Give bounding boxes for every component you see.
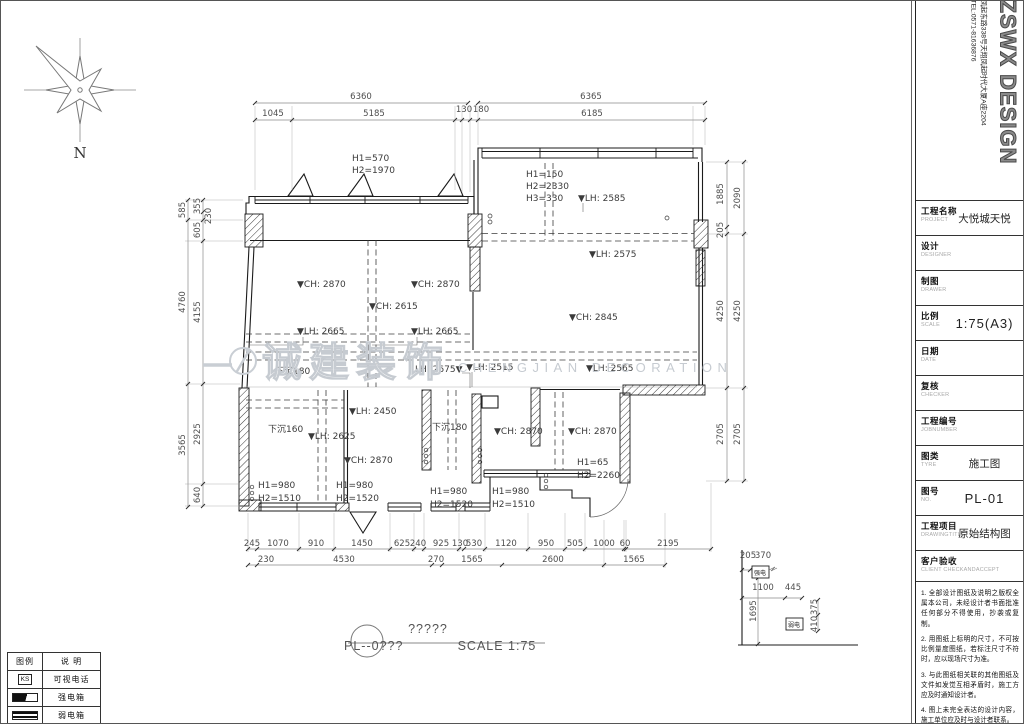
svg-text-title: PL--0??? xyxy=(344,639,403,653)
svg-text-dim: 910 xyxy=(308,539,324,549)
svg-text-dim: 445 xyxy=(785,583,801,593)
titleblock-field-5: 复核CHECKER xyxy=(916,376,1024,411)
field-value: 施工图 xyxy=(948,446,1021,480)
company-address: 凤起东路338号天翔凤起时代大厦A座2204 xyxy=(979,0,989,201)
svg-text-dim: 4250 xyxy=(716,300,726,322)
legend-label: 可视电话 xyxy=(42,671,100,688)
legend-row-1: 强电箱 xyxy=(8,688,100,706)
legend-row-2: 弱电箱 xyxy=(8,706,100,724)
svg-text-note: H1=150 xyxy=(526,170,563,180)
svg-text-dim: 205 xyxy=(716,222,726,238)
svg-text-note: 下沉160 xyxy=(268,424,303,435)
svg-text-dim: 585 xyxy=(178,202,188,218)
svg-text-note: H2=1520 xyxy=(336,494,379,504)
svg-text-dim: 375 xyxy=(810,599,820,615)
field-label: 日期 xyxy=(921,345,939,357)
svg-text-dim: 2195 xyxy=(657,539,679,549)
legend-row-0: KS可视电话 xyxy=(8,670,100,688)
svg-text-dim: 625 xyxy=(394,539,410,549)
svg-text-dim: 1565 xyxy=(623,555,645,565)
field-label: 制图 xyxy=(921,275,939,287)
svg-text-dim: 230 xyxy=(258,555,274,565)
field-value: 1:75(A3) xyxy=(948,306,1021,340)
svg-text-dim: 370 xyxy=(755,551,771,561)
svg-text-dim: 230 xyxy=(204,208,214,224)
field-label: 设计 xyxy=(921,240,939,252)
north-arrow-icon xyxy=(24,38,136,142)
svg-text-note: ▼CH: 2615 xyxy=(369,302,418,312)
legend-table: 图例 说 明 KS可视电话强电箱弱电箱 xyxy=(7,652,101,724)
svg-text-dim: 1100 xyxy=(752,583,774,593)
svg-text-dim: 2925 xyxy=(193,423,203,445)
svg-text-dim: 240 xyxy=(410,539,426,549)
svg-text-dim: 2090 xyxy=(733,187,743,209)
svg-text-dim: 205 xyxy=(740,551,756,561)
field-value xyxy=(948,551,1021,581)
svg-text-note: 下沉180 xyxy=(432,422,467,433)
svg-text-note: ▼CH: 2870 xyxy=(297,280,346,290)
field-value xyxy=(948,411,1021,445)
svg-text-note: H2=1970 xyxy=(352,166,395,176)
titleblock-field-7: 图类TYRE施工图 xyxy=(916,446,1024,481)
titleblock-notes: 1. 全部设计图纸及说明之版权全属本公司，未经设计者书面批准任何部分不得使用，抄… xyxy=(916,581,1024,718)
svg-text-dim: 2705 xyxy=(733,423,743,445)
svg-text-note: H1=980 xyxy=(336,481,373,491)
titleblock-rows: 工程名称PROJECT大悦城天悦设计DESIGNER制图DRAWER比例SCAL… xyxy=(916,201,1024,581)
svg-text-dim: 3565 xyxy=(178,434,188,456)
svg-text-note: H2=1510 xyxy=(492,500,535,510)
text-layer: 6360636510455185130180618558547603565355… xyxy=(73,92,820,653)
field-value: 原始结构图 xyxy=(948,516,1021,550)
svg-text-note: H1=980 xyxy=(492,487,529,497)
svg-text-note: H1=980 xyxy=(430,487,467,497)
svg-text-dim: 505 xyxy=(567,539,583,549)
svg-text-dim: 1450 xyxy=(351,539,373,549)
svg-text-note: ▼LH: 2665 xyxy=(411,327,459,337)
svg-text-dim: 6365 xyxy=(580,92,602,102)
svg-text-dim: 2705 xyxy=(716,423,726,445)
svg-text-note: ▼CH: 2870 xyxy=(411,280,460,290)
svg-text-dim: 925 xyxy=(433,539,449,549)
svg-text-note: H2=2330 xyxy=(526,182,569,192)
svg-text-dim: 530 xyxy=(466,539,482,549)
titleblock-divider xyxy=(911,0,912,724)
svg-text-box: 强电 xyxy=(754,569,766,577)
legend-header-symbol: 图例 xyxy=(8,653,42,670)
company-logo-section: ZSWX DESIGN 凤起东路338号天翔凤起时代大厦A座2204 TEL:0… xyxy=(916,0,1024,201)
svg-text-dim: 4250 xyxy=(733,300,743,322)
svg-text-dim: 6185 xyxy=(581,109,603,119)
titleblock-field-8: 图号NO.PL-01 xyxy=(916,481,1024,516)
svg-text-note: ▼CH: 2870 xyxy=(344,456,393,466)
field-label: 图类 xyxy=(921,450,939,462)
svg-text-dim: 60 xyxy=(620,539,631,549)
svg-text-dim: 4530 xyxy=(333,555,355,565)
svg-text-dim: 4760 xyxy=(178,291,188,313)
svg-text-dim: 270 xyxy=(428,555,444,565)
titleblock-note-2: 2. 用图纸上标明的尺寸，不可按比例量度图纸，若标注尺寸不符时，应以现场尺寸为准… xyxy=(921,635,1019,666)
svg-text-dim: 1565 xyxy=(461,555,483,565)
titleblock-field-9: 工程项目DRAWINGTITLE原始结构图 xyxy=(916,516,1024,551)
floorplan-canvas: 6360636510455185130180618558547603565355… xyxy=(0,0,915,724)
titleblock-note-3: 3. 与此图纸相关联的其他图纸及文件如发觉互相矛盾时，施工方应及时通知设计者。 xyxy=(921,671,1019,702)
titleblock-field-3: 比例SCALE1:75(A3) xyxy=(916,306,1024,341)
svg-text-note: ▼CH: 2870 xyxy=(568,427,617,437)
svg-text-title: SCALE 1:75 xyxy=(458,639,537,653)
svg-text-north: N xyxy=(73,144,86,162)
legend-label: 强电箱 xyxy=(42,689,100,706)
field-label: 复核 xyxy=(921,380,939,392)
svg-text-dim: 1070 xyxy=(267,539,289,549)
svg-text-title: ????? xyxy=(408,622,448,636)
svg-text-dim: 2600 xyxy=(542,555,564,565)
svg-text-note: H1=65 xyxy=(577,458,609,468)
legend-symbol-cell xyxy=(8,689,42,706)
svg-text-note: H2=2260 xyxy=(577,471,620,481)
svg-text-dim: 1045 xyxy=(262,109,284,119)
field-label: 比例 xyxy=(921,310,939,322)
field-value xyxy=(948,341,1021,375)
weak-symbol-icon xyxy=(12,711,38,720)
field-value: PL-01 xyxy=(948,481,1021,515)
svg-text-note: ▼LH: 2665 xyxy=(297,327,345,337)
svg-text-note: ▼LH: 2625 xyxy=(308,432,356,442)
field-value xyxy=(948,271,1021,305)
strong-symbol-icon xyxy=(12,693,38,702)
titleblock-field-1: 设计DESIGNER xyxy=(916,236,1024,271)
titleblock-field-10: 客户验收CLIENT CHECKANDACCEPT xyxy=(916,551,1024,581)
svg-text-note: ▼LH: 2450 xyxy=(349,407,397,417)
titleblock-note-1: 1. 全部设计图纸及说明之版权全属本公司，未经设计者书面批准任何部分不得使用，抄… xyxy=(921,589,1019,630)
svg-text-dim: 130 xyxy=(456,105,472,115)
svg-text-dim: 640 xyxy=(193,487,203,503)
svg-text-dim: 6360 xyxy=(350,92,372,102)
svg-text-dim: 950 xyxy=(538,539,554,549)
titleblock-field-2: 制图DRAWER xyxy=(916,271,1024,306)
legend-header-desc: 说 明 xyxy=(42,653,100,670)
field-label: 图号 xyxy=(921,485,939,497)
svg-text-dim: 180 xyxy=(473,105,489,115)
svg-text-note: H1=570 xyxy=(352,154,389,164)
svg-text-wmen: CHENGJIAN DECORATION xyxy=(458,360,732,375)
titleblock-field-0: 工程名称PROJECT大悦城天悦 xyxy=(916,201,1024,236)
company-logo: ZSWX DESIGN xyxy=(996,0,1019,201)
svg-text-dim: 1000 xyxy=(593,539,615,549)
svg-text-note: ▼CH: 2845 xyxy=(569,313,618,323)
svg-text-note: H2=1510 xyxy=(258,494,301,504)
svg-text-note: ▼LH: 2575 xyxy=(589,250,637,260)
title-block: ZSWX DESIGN 凤起东路338号天翔凤起时代大厦A座2204 TEL:0… xyxy=(915,0,1024,724)
svg-text-dim: 1695 xyxy=(749,600,759,622)
company-tel: TEL:0571-81636876 xyxy=(969,0,976,201)
svg-text-note: H3=330 xyxy=(526,194,563,204)
titleblock-field-6: 工程编号JOBNUMBER xyxy=(916,411,1024,446)
svg-text-dim: 4155 xyxy=(193,301,203,323)
svg-text-note: ▼CH: 2870 xyxy=(494,427,543,437)
field-value: 大悦城天悦 xyxy=(948,201,1021,235)
svg-text-dim: 355 xyxy=(193,198,203,214)
svg-text-dim: 245 xyxy=(244,539,260,549)
svg-text-dim: 1885 xyxy=(716,183,726,205)
svg-text-dim: 605 xyxy=(193,222,203,238)
legend-symbol-cell: KS xyxy=(8,671,42,688)
field-value xyxy=(948,236,1021,270)
ks-symbol-icon: KS xyxy=(18,674,33,685)
svg-text-box: 弱电 xyxy=(788,621,800,629)
svg-text-dim: 410 xyxy=(810,616,820,632)
titleblock-field-4: 日期DATE xyxy=(916,341,1024,376)
svg-text-dim: 5185 xyxy=(363,109,385,119)
svg-text-note: H1=980 xyxy=(258,481,295,491)
svg-text-wmcn: 诚建装饰 xyxy=(262,341,450,385)
field-value xyxy=(948,376,1021,410)
svg-text-note: ▼LH: 2585 xyxy=(578,194,626,204)
legend-symbol-cell xyxy=(8,707,42,724)
electric-box-detail xyxy=(738,550,858,645)
svg-text-dim: 1120 xyxy=(495,539,517,549)
svg-text-note: H2=1520 xyxy=(430,500,473,510)
legend-header-row: 图例 说 明 xyxy=(8,653,100,670)
legend-label: 弱电箱 xyxy=(42,707,100,724)
